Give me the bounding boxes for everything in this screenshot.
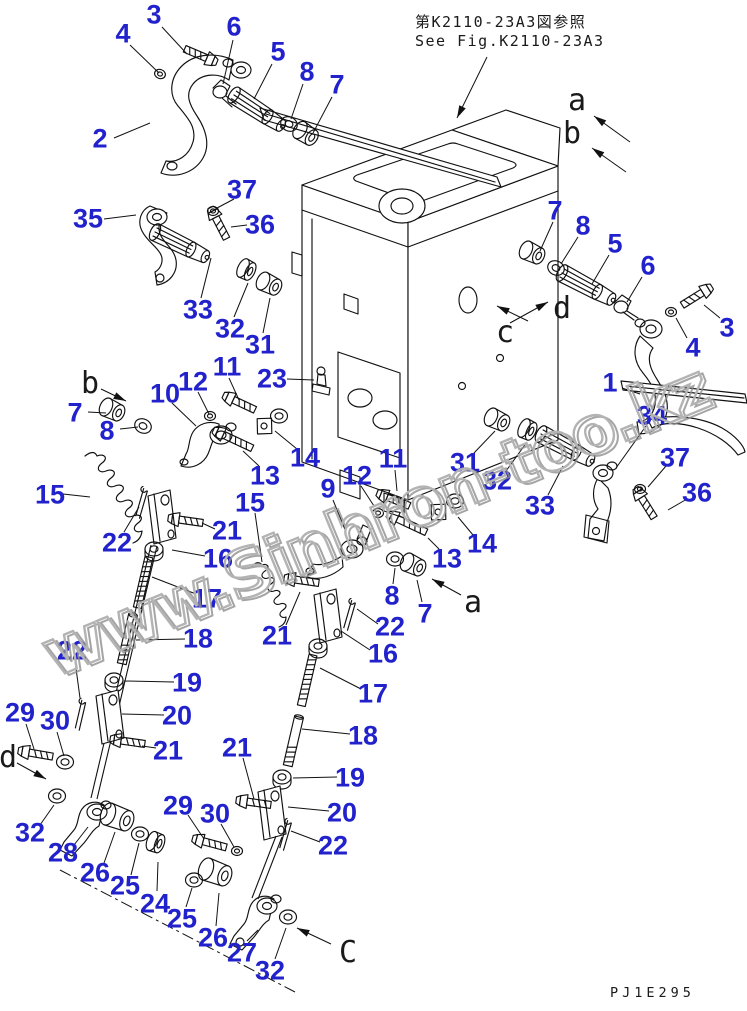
washer-32 bbox=[49, 789, 66, 803]
view-letter: d bbox=[0, 740, 17, 775]
bolt-29 bbox=[191, 832, 228, 855]
reference-note-jp: 第K2110-23A3図参照 bbox=[415, 13, 586, 31]
callout-label: 25 bbox=[167, 904, 197, 934]
collar-32 bbox=[234, 257, 258, 283]
part-35-lever bbox=[140, 206, 176, 285]
callout-label: 33 bbox=[183, 295, 213, 325]
callout-label: 25 bbox=[110, 871, 140, 901]
callout-label: 3 bbox=[146, 0, 161, 30]
callout-label: 12 bbox=[178, 367, 208, 397]
leader-line bbox=[201, 258, 211, 298]
view-arrowhead bbox=[33, 770, 46, 779]
callout-label: 2 bbox=[92, 124, 107, 154]
callout-label: 30 bbox=[40, 706, 70, 736]
leader-line bbox=[122, 714, 164, 715]
leader-line bbox=[114, 123, 150, 138]
view-arrowhead bbox=[432, 579, 445, 588]
leader-line bbox=[254, 64, 272, 99]
callout-label: 36 bbox=[245, 210, 275, 240]
callout-label: 18 bbox=[348, 721, 378, 751]
callout-label: 6 bbox=[640, 251, 655, 281]
part-10-lever bbox=[180, 422, 236, 467]
clevis-upper bbox=[314, 589, 342, 643]
callout-label: 26 bbox=[80, 858, 110, 888]
cotter-pin-22 bbox=[136, 486, 148, 519]
part-2-pedal-lever bbox=[161, 55, 251, 175]
cotter-pin-22 bbox=[344, 598, 356, 631]
callout-label: 11 bbox=[213, 352, 242, 382]
callout-label: 37 bbox=[227, 175, 257, 205]
callout-label: 30 bbox=[200, 799, 230, 829]
leader-line bbox=[124, 681, 174, 682]
leader-line bbox=[263, 298, 270, 333]
leader-line bbox=[104, 215, 136, 219]
washer-8 bbox=[132, 416, 153, 436]
callout-label: 20 bbox=[162, 701, 192, 731]
bolt-36 bbox=[204, 204, 232, 242]
callout-label: 6 bbox=[226, 12, 241, 42]
callout-label: 14 bbox=[290, 443, 320, 473]
leader-line bbox=[627, 277, 642, 302]
bolt-11 bbox=[220, 389, 258, 416]
callout-label: 8 bbox=[99, 416, 114, 446]
leader-line bbox=[88, 412, 106, 413]
callout-label: 28 bbox=[48, 838, 78, 868]
leader-line bbox=[288, 807, 329, 811]
leader-line bbox=[216, 893, 219, 926]
washer-25 bbox=[132, 827, 149, 841]
callout-label: 4 bbox=[115, 19, 130, 49]
callout-label: 37 bbox=[660, 443, 690, 473]
callout-label: 8 bbox=[299, 57, 314, 87]
callout-label: 23 bbox=[257, 364, 287, 394]
callout-label: 20 bbox=[327, 798, 357, 828]
callout-label: 5 bbox=[607, 229, 622, 259]
view-arrowhead bbox=[594, 116, 606, 126]
leader-line bbox=[592, 255, 609, 284]
clevis-20 bbox=[258, 786, 286, 840]
leader-line bbox=[157, 862, 158, 891]
bolt-3 bbox=[678, 281, 715, 311]
callout-label: 7 bbox=[329, 70, 344, 100]
leader-line bbox=[63, 494, 90, 497]
callout-label: 17 bbox=[358, 679, 388, 709]
view-letter: C bbox=[339, 935, 357, 970]
callout-label: 19 bbox=[335, 763, 365, 793]
exploded-parts-drawing: 第K2110-23A3図参照 See Fig.K2110-23A3 346587… bbox=[0, 0, 747, 1011]
callout-label: 24 bbox=[140, 889, 170, 919]
leader-line bbox=[234, 283, 248, 317]
callout-label: 8 bbox=[575, 211, 590, 241]
sleeve-24 bbox=[144, 830, 167, 855]
callout-label: 3 bbox=[719, 313, 734, 343]
leader-line bbox=[130, 45, 159, 73]
washer-12 bbox=[205, 412, 216, 421]
leader-line bbox=[275, 928, 286, 959]
leader-line bbox=[291, 84, 303, 119]
note-arrowhead bbox=[457, 105, 466, 118]
callout-label: 36 bbox=[682, 478, 712, 508]
view-letter: b bbox=[81, 366, 99, 401]
callout-label: 29 bbox=[5, 698, 35, 728]
view-letter: a bbox=[464, 585, 482, 620]
drawing-code: PJ1E295 bbox=[610, 985, 695, 1001]
callout-label: 19 bbox=[172, 668, 202, 698]
link-rod bbox=[252, 836, 282, 899]
callout-label: 29 bbox=[163, 791, 193, 821]
washer-25 bbox=[186, 873, 203, 887]
leader-line bbox=[302, 729, 350, 734]
threaded-rod-17 bbox=[297, 654, 316, 706]
callout-label: 7 bbox=[547, 196, 562, 226]
callout-label: 32 bbox=[15, 818, 45, 848]
nut-19 bbox=[273, 770, 291, 789]
callout-label: 5 bbox=[270, 37, 285, 67]
callout-label: 16 bbox=[368, 639, 398, 669]
bolt-21 bbox=[109, 732, 146, 751]
washer-14 bbox=[271, 409, 288, 423]
leader-line bbox=[704, 305, 720, 318]
bushing-31 bbox=[253, 270, 284, 298]
callout-label: 8 bbox=[384, 581, 399, 611]
callout-label: 7 bbox=[417, 599, 432, 629]
view-arrowhead bbox=[113, 392, 126, 401]
callout-label: 26 bbox=[198, 923, 228, 953]
cotter-pin-22 bbox=[75, 698, 86, 731]
washer-30 bbox=[57, 755, 74, 769]
callout-label: 14 bbox=[467, 529, 497, 559]
washer-30 bbox=[232, 847, 243, 856]
view-arrowhead bbox=[592, 148, 604, 158]
callout-label: 15 bbox=[235, 488, 265, 518]
bolt-29 bbox=[17, 744, 54, 764]
rod-18 bbox=[283, 714, 303, 767]
washer-32 bbox=[280, 910, 297, 924]
callout-label: 21 bbox=[222, 733, 252, 763]
view-letter: b bbox=[563, 116, 581, 151]
joint-6 bbox=[614, 295, 638, 320]
callout-label: 13 bbox=[432, 544, 462, 574]
callout-label: 22 bbox=[318, 831, 348, 861]
callout-label: 7 bbox=[67, 398, 82, 428]
view-letter: d bbox=[553, 291, 571, 326]
leader-line bbox=[320, 668, 361, 689]
callout-label: 21 bbox=[153, 736, 183, 766]
leader-line bbox=[243, 758, 254, 799]
leader-line bbox=[162, 27, 187, 54]
view-letter: a bbox=[568, 83, 586, 118]
washer-4 bbox=[666, 308, 677, 317]
callout-label: 21 bbox=[262, 621, 292, 651]
view-letter: c bbox=[496, 315, 514, 350]
clevis-20 bbox=[96, 690, 124, 744]
callout-label: 35 bbox=[73, 204, 103, 234]
leader-line bbox=[291, 831, 320, 842]
callout-label: 32 bbox=[255, 956, 285, 986]
leader-line bbox=[341, 631, 370, 650]
reference-note-en: See Fig.K2110-23A3 bbox=[415, 32, 605, 50]
callout-label: 32 bbox=[215, 314, 245, 344]
parts-diagram-page: 第K2110-23A3図参照 See Fig.K2110-23A3 346587… bbox=[0, 0, 747, 1011]
callout-label: 13 bbox=[250, 461, 280, 491]
view-arrowhead bbox=[297, 928, 310, 937]
leader-line bbox=[561, 237, 578, 264]
callout-label: 31 bbox=[245, 330, 275, 360]
leader-line bbox=[57, 732, 64, 756]
callout-label: 22 bbox=[375, 612, 405, 642]
callout-label: 15 bbox=[35, 480, 65, 510]
leader-line bbox=[293, 777, 337, 778]
callout-label: 27 bbox=[227, 938, 257, 968]
callout-label: 22 bbox=[102, 528, 132, 558]
callout-label: 10 bbox=[150, 379, 180, 409]
